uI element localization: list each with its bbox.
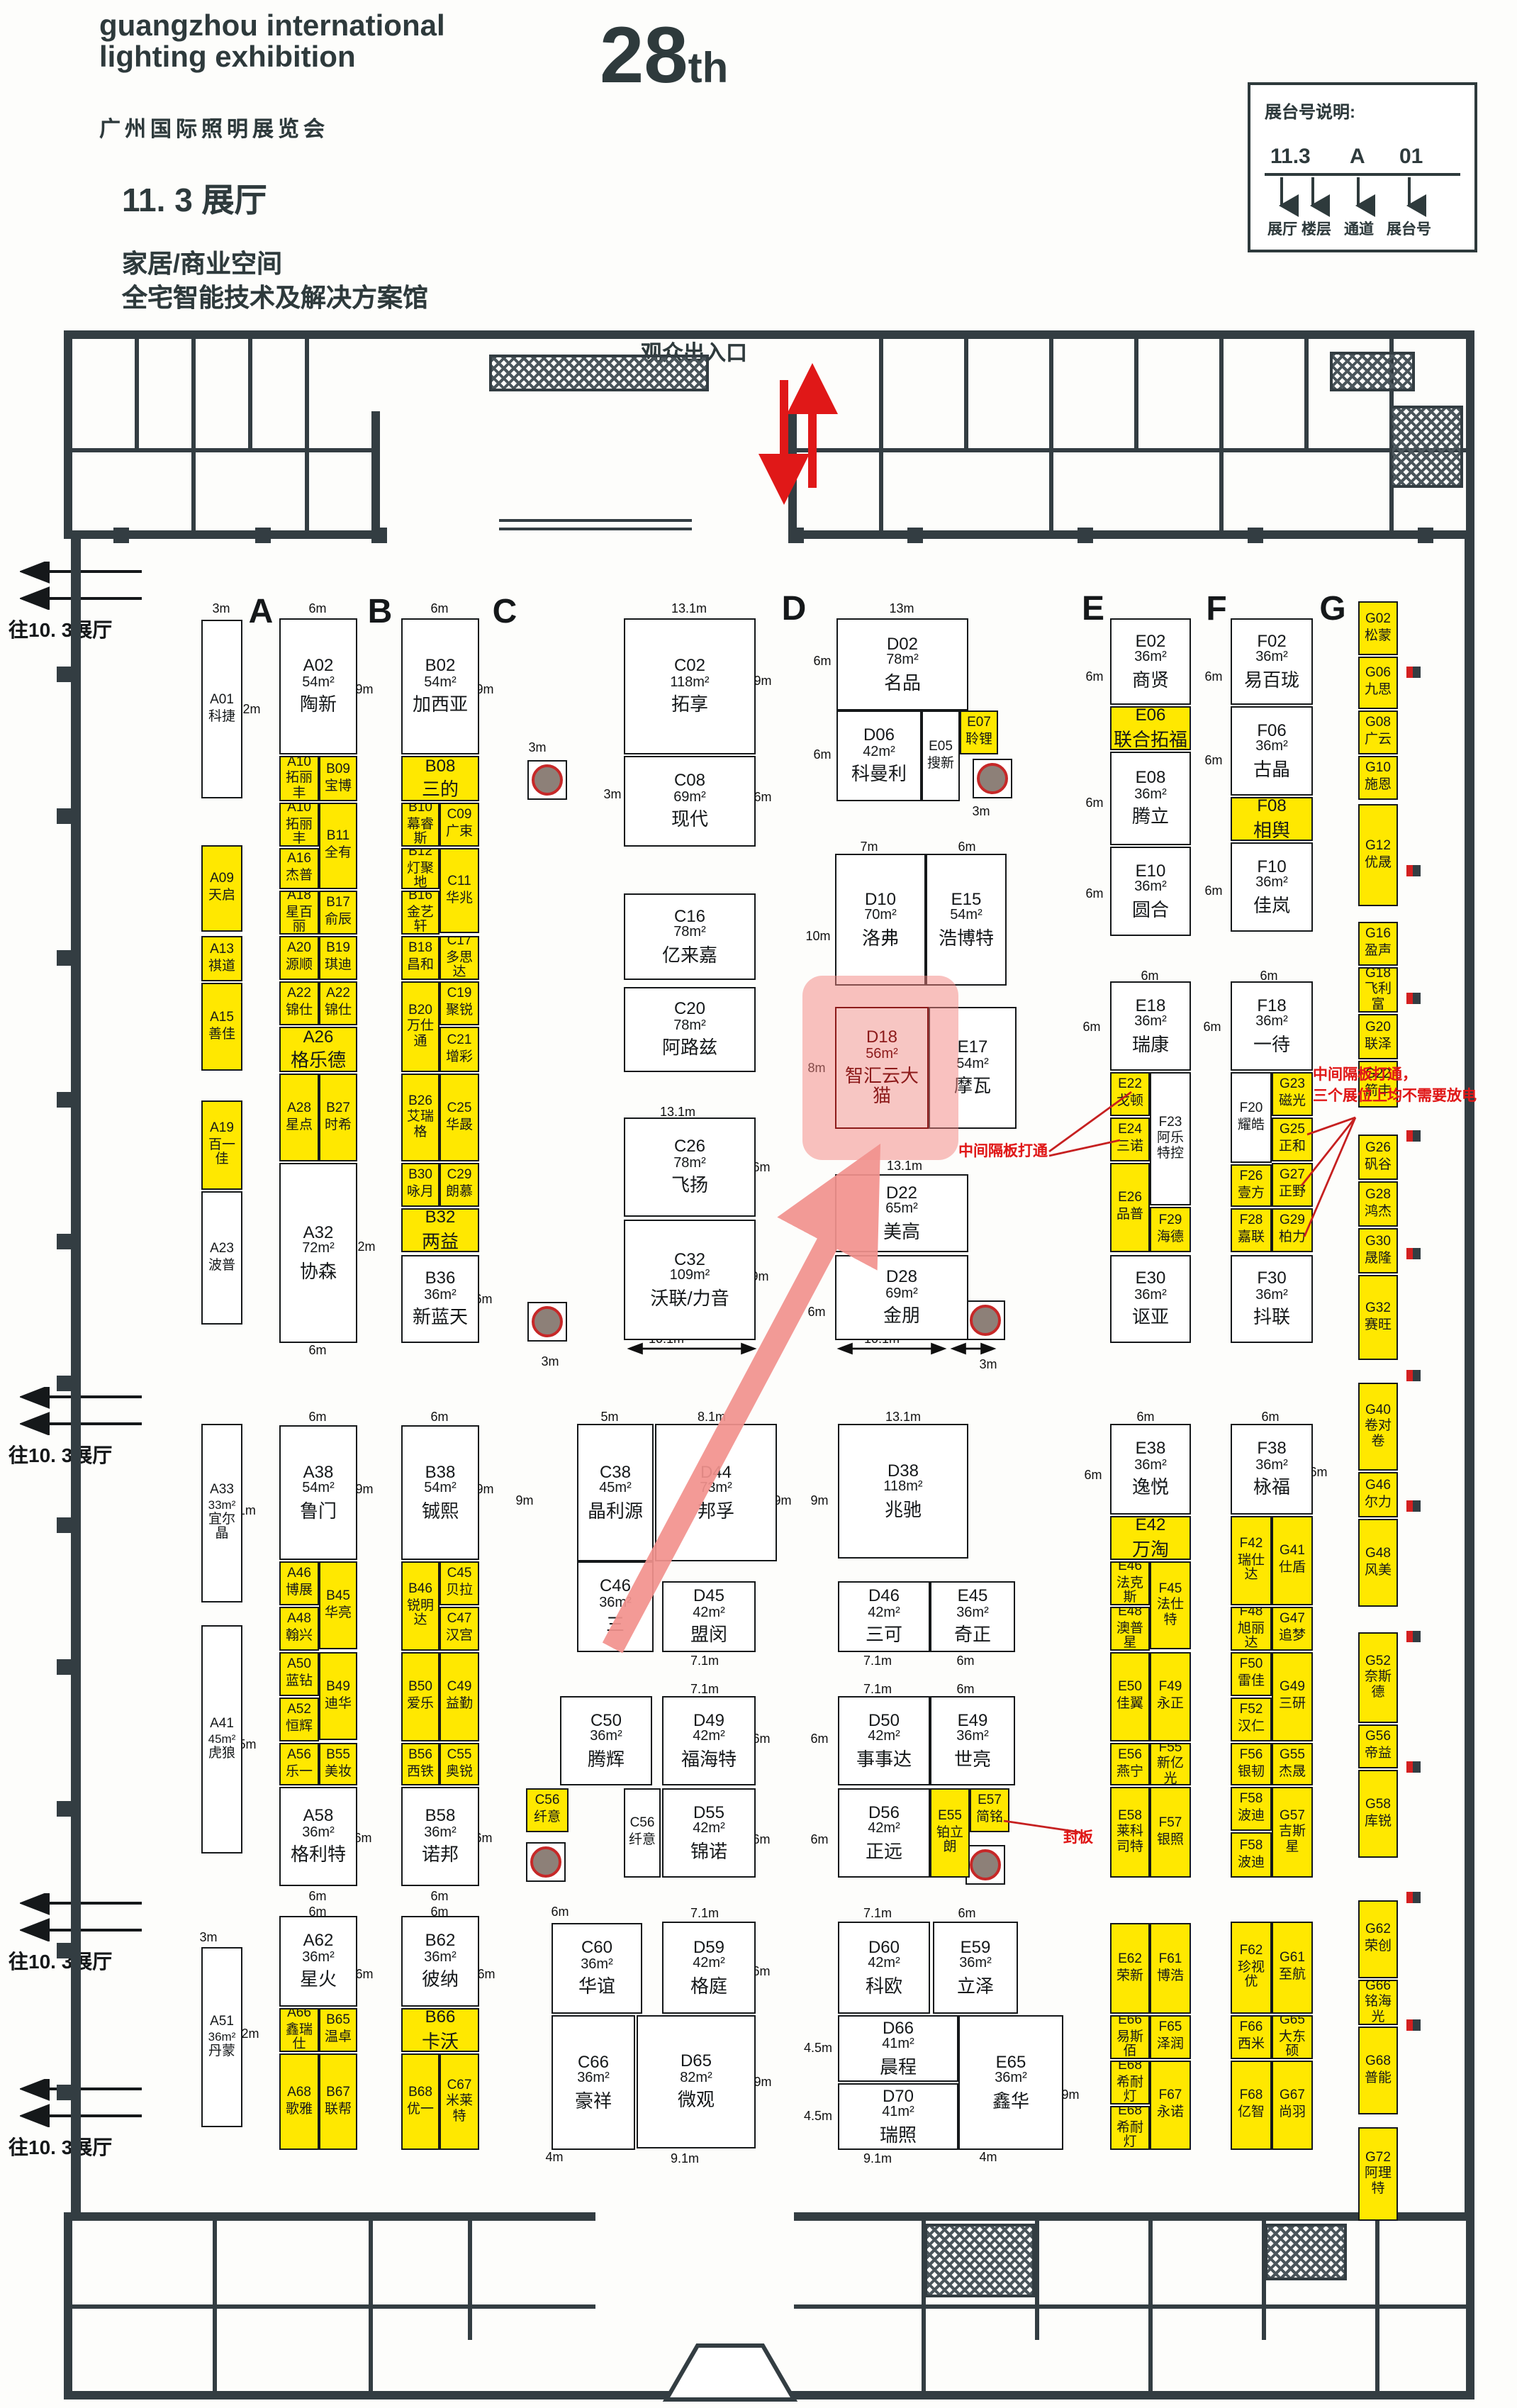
booth-area: 72m² — [302, 1243, 335, 1258]
booth-id: A66 — [287, 2008, 311, 2022]
booth-e46: E46法克斯 — [1110, 1561, 1150, 1605]
booth-b12: B12灯聚地 — [401, 848, 440, 889]
booth-number-legend: 展台号说明: 11.3 A 01 展厅 楼层 通道 展台号 — [1248, 82, 1477, 252]
booth-b10: B10幕睿斯 — [401, 803, 440, 847]
booth-g29: G29柏力 — [1272, 1208, 1313, 1252]
booth-id: G40 — [1365, 1404, 1391, 1419]
booth-name: 广云 — [1365, 733, 1392, 748]
booth-area: 36m² — [424, 1951, 457, 1966]
booth-a62: A6236m²星火 — [279, 1916, 357, 2007]
booth-id: F58 — [1240, 1839, 1263, 1854]
booth-name: 仕盾 — [1279, 1561, 1306, 1576]
dim-label: 6m — [308, 601, 326, 615]
dim-label: 6m — [813, 747, 831, 762]
booth-area: 36m² — [959, 1958, 992, 1973]
booth-name: 商贤 — [1132, 671, 1169, 691]
booth-b32: B32两益 — [401, 1208, 479, 1252]
booth-name: 翰兴 — [286, 1629, 313, 1644]
booth-area: 70m² — [864, 910, 897, 925]
wall-pillar — [57, 950, 77, 966]
booth-id: B19 — [326, 942, 350, 957]
booth-name: 晟隆 — [1365, 1252, 1392, 1266]
booth-area: 42m² — [868, 1607, 900, 1622]
booth-id: C56 — [630, 1817, 655, 1832]
booth-g40: G40卷对卷 — [1358, 1383, 1398, 1471]
dim-label: 6m — [308, 1343, 326, 1357]
booth-name: 佳岚 — [1253, 896, 1290, 917]
booth-id: D18 — [866, 1028, 897, 1047]
red-annotation: 三个展位上均不需要放电 — [1313, 1085, 1477, 1106]
booth-area: 78m² — [673, 1020, 706, 1035]
booth-name: 虎狼 — [208, 1746, 235, 1761]
dim-label: 13.1m — [671, 601, 707, 615]
booth-name: 三的 — [422, 780, 459, 801]
booth-name: 荣创 — [1365, 1940, 1392, 1955]
wall-pillar — [57, 667, 77, 682]
booth-id: G20 — [1365, 1021, 1391, 1036]
booth-id: G18 — [1365, 967, 1391, 982]
booth-id: B27 — [326, 1102, 350, 1117]
booth-area: 42m² — [693, 1731, 725, 1746]
booth-name: 沃联/力音 — [650, 1289, 729, 1310]
booth-area: 33m² — [208, 1499, 236, 1512]
booth-id: E50 — [1118, 1681, 1142, 1696]
booth-id: A20 — [287, 942, 311, 957]
booth-id: F18 — [1257, 997, 1286, 1016]
booth-id: E55 — [938, 1810, 962, 1825]
dim-label: 6m — [958, 840, 975, 854]
dim-label: 7.1m — [863, 1682, 892, 1696]
booth-e15: E1554m²浩博特 — [926, 854, 1007, 986]
booth-area: 36m² — [1134, 652, 1167, 667]
booth-b38: B3854m²铖熙 — [401, 1425, 479, 1560]
booth-e65: E6536m²鑫华 — [958, 2015, 1063, 2150]
booth-id: D45 — [693, 1588, 724, 1607]
booth-name: 松蒙 — [1365, 629, 1392, 644]
booth-name: 燕宁 — [1116, 1765, 1143, 1780]
booth-f55: F55新亿光 — [1150, 1743, 1191, 1785]
booth-name: 锦仕 — [286, 1004, 313, 1019]
booth-f20: F20耀皓 — [1231, 1072, 1272, 1163]
hatched-block — [1389, 406, 1463, 488]
booth-a56: A56乐一 — [279, 1743, 319, 1785]
booth-name: 微观 — [678, 2091, 715, 2112]
booth-g18: G18飞利富 — [1358, 967, 1398, 1013]
booth-name: 阿理特 — [1360, 2168, 1396, 2197]
booth-g41: G41仕盾 — [1272, 1516, 1313, 1605]
booth-name: 丹蒙 — [208, 2044, 235, 2059]
booth-area: 42m² — [868, 1958, 900, 1973]
booth-name: 金艺轩 — [403, 906, 438, 935]
dim-label: 6m — [1141, 969, 1158, 983]
booth-e55: E55铂立朗 — [930, 1788, 970, 1878]
booth-name: 格庭 — [690, 1977, 727, 1997]
hatched-block — [1265, 2224, 1347, 2280]
booth-g52: G52奈斯德 — [1358, 1632, 1398, 1723]
booth-name: 波迪 — [1238, 1810, 1265, 1824]
booth-b27: B27时希 — [319, 1074, 357, 1161]
booth-name: 泽润 — [1157, 2038, 1184, 2053]
booth-name: 亿来嘉 — [662, 946, 717, 966]
booth-a09: A09天启 — [201, 845, 242, 932]
booth-name: 施恩 — [1365, 779, 1392, 793]
booth-id: A16 — [287, 853, 311, 868]
booth-e62: E62荣新 — [1110, 1923, 1150, 2014]
booth-id: C55 — [447, 1749, 472, 1763]
legend-label-aisle: 通道 — [1344, 218, 1374, 240]
wall-segment — [135, 330, 139, 451]
booth-g47: G47追梦 — [1272, 1607, 1313, 1651]
booth-area: 36m² — [1255, 741, 1288, 756]
booth-name: 科欧 — [866, 1977, 902, 1997]
dim-label: 3m — [528, 740, 546, 754]
booth-name: 歌雅 — [286, 2102, 313, 2117]
booth-g66: G66铭海光 — [1358, 1980, 1398, 2025]
booth-c45: C45贝拉 — [440, 1561, 479, 1605]
booth-id: F50 — [1240, 1659, 1263, 1673]
booth-name: 昌和 — [407, 959, 434, 974]
booth-id: A32 — [303, 1224, 334, 1243]
booth-a58: A5836m²格利特 — [279, 1787, 357, 1886]
aisle-letter-b: B — [368, 593, 393, 632]
power-marker — [1406, 865, 1421, 876]
booth-id: B38 — [425, 1464, 456, 1483]
booth-name: 纤意 — [629, 1834, 656, 1849]
booth-name: 品普 — [1116, 1208, 1143, 1223]
booth-name: 聆锂 — [965, 733, 992, 748]
booth-name: 汉宫 — [446, 1629, 473, 1644]
column-marker — [977, 763, 1008, 794]
booth-id: F26 — [1240, 1170, 1263, 1185]
booth-a23: A23波普 — [201, 1191, 242, 1325]
booth-area: 54m² — [956, 1058, 989, 1073]
dim-label: 4m — [545, 2150, 563, 2164]
booth-name: 源顺 — [286, 959, 313, 974]
booth-name: 兆驰 — [885, 1500, 922, 1521]
booth-id: D02 — [887, 635, 918, 654]
booth-area: 42m² — [693, 1607, 725, 1622]
booth-e24: E24三诺 — [1110, 1117, 1150, 1161]
booth-e02: E0236m²商贤 — [1110, 618, 1191, 705]
booth-name: 瑞仕达 — [1232, 1554, 1270, 1584]
booth-name: 西铁 — [407, 1765, 434, 1780]
booth-area: 36m² — [424, 1827, 457, 1841]
booth-id: C49 — [447, 1681, 472, 1696]
booth-name: 华兆 — [446, 891, 473, 906]
booth-e38: E3836m²逸悦 — [1110, 1424, 1191, 1515]
power-marker — [1406, 667, 1421, 678]
booth-id: A41 — [210, 1717, 234, 1732]
wall-segment — [1466, 330, 1474, 539]
booth-id: E45 — [958, 1588, 988, 1607]
booth-g30: G30晟隆 — [1358, 1228, 1398, 1273]
booth-c19: C19聚锐 — [440, 981, 479, 1025]
booth-b58: B5836m²诺邦 — [401, 1787, 479, 1886]
booth-a68: A68歌雅 — [279, 2053, 319, 2150]
booth-f58: F58波迪 — [1231, 1787, 1272, 1831]
booth-name: 纤意 — [534, 1811, 561, 1826]
booth-id: G66 — [1365, 1980, 1391, 1995]
booth-name: 正野 — [1279, 1186, 1306, 1200]
booth-name: 卷对卷 — [1360, 1420, 1396, 1450]
booth-name: 艾瑞格 — [403, 1111, 438, 1141]
booth-id: G56 — [1365, 1731, 1391, 1746]
dim-label: 4.5m — [804, 2041, 832, 2055]
booth-id: A38 — [303, 1464, 334, 1483]
booth-name: 盟闵 — [690, 1626, 727, 1646]
booth-name: 铖熙 — [422, 1502, 459, 1522]
booth-id: A23 — [210, 1242, 234, 1257]
booth-name: 海德 — [1157, 1230, 1184, 1245]
booth-e42: E42万淘 — [1110, 1516, 1191, 1560]
wall-segment — [794, 448, 1470, 452]
booth-id: C60 — [581, 1939, 612, 1958]
booth-name: 奈斯德 — [1360, 1671, 1396, 1701]
booth-id: G46 — [1365, 1479, 1391, 1494]
booth-name: 温卓 — [325, 2031, 352, 2046]
booth-name: 全有 — [325, 847, 352, 862]
dim-label: 6m — [1203, 1020, 1221, 1034]
booth-area: 78m² — [673, 1157, 706, 1172]
booth-id: D06 — [863, 727, 895, 746]
booth-f58: F58波迪 — [1231, 1832, 1272, 1878]
booth-g23: G23磁光 — [1272, 1072, 1313, 1116]
booth-b16: B16金艺轩 — [401, 891, 440, 935]
booth-c20: C2078m²阿路兹 — [624, 987, 756, 1072]
wall-pillar — [1077, 528, 1093, 543]
booth-name: 法克斯 — [1112, 1577, 1148, 1605]
booth-id: E58 — [1118, 1810, 1142, 1824]
wall-pillar — [907, 528, 923, 543]
page-title: guangzhou international lighting exhibit… — [99, 11, 445, 74]
booth-f08: F08相舆 — [1231, 797, 1313, 841]
booth-name: 易百珑 — [1244, 671, 1299, 691]
booth-id: F58 — [1240, 1793, 1263, 1808]
booth-name: 恒辉 — [286, 1720, 313, 1735]
booth-b56: B56西铁 — [401, 1743, 440, 1785]
booth-id: C26 — [674, 1138, 705, 1157]
booth-id: B50 — [408, 1681, 432, 1696]
column-marker — [532, 764, 563, 796]
hatched-block — [1330, 352, 1415, 391]
booth-name: 优一 — [407, 2102, 434, 2117]
booth-id: G29 — [1280, 1215, 1305, 1230]
booth-e56: E56燕宁 — [1110, 1743, 1150, 1785]
booth-id: A56 — [287, 1749, 311, 1763]
booth-c11: C11华兆 — [440, 848, 479, 933]
booth-e45: E4536m²奇正 — [930, 1581, 1015, 1652]
booth-name: 磁光 — [1279, 1095, 1306, 1110]
booth-area: 42m² — [693, 1823, 725, 1838]
booth-name: 咏月 — [407, 1186, 434, 1200]
booth-c49: C49益勤 — [440, 1652, 479, 1741]
booth-b66: B66卡沃 — [401, 2008, 479, 2052]
booth-name: 诺邦 — [422, 1846, 459, 1866]
legend-label-floor: 楼层 — [1302, 218, 1331, 240]
booth-name: 华亮 — [325, 1606, 352, 1621]
exit-arrows — [20, 1387, 147, 1435]
booth-name: 尔力 — [1365, 1495, 1392, 1510]
booth-id: G52 — [1365, 1655, 1391, 1670]
booth-id: E05 — [929, 740, 953, 755]
booth-g58: G58库锐 — [1358, 1770, 1398, 1858]
booth-id: C32 — [674, 1251, 705, 1270]
booth-c32: C32109m²沃联/力音 — [624, 1220, 756, 1340]
booth-name: 格利特 — [291, 1846, 346, 1866]
booth-g55: G55杰晟 — [1272, 1743, 1313, 1785]
booth-id: C38 — [600, 1464, 631, 1483]
aisle-letter-e: E — [1082, 590, 1104, 630]
booth-id: A22 — [287, 988, 311, 1003]
booth-name: 福海特 — [681, 1750, 737, 1771]
wall-segment — [1035, 2212, 1039, 2340]
booth-id: E08 — [1136, 769, 1166, 788]
booth-id: B66 — [425, 2008, 456, 2027]
booth-d46: D4642m²三可 — [838, 1581, 930, 1652]
wall-segment — [879, 330, 883, 530]
booth-name: 美高 — [883, 1222, 920, 1243]
booth-name: 现代 — [671, 810, 708, 831]
booth-e26: E26品普 — [1110, 1163, 1150, 1252]
booth-id: F38 — [1257, 1440, 1286, 1459]
dim-label: 9m — [754, 2075, 771, 2089]
dim-label: 3m — [972, 804, 990, 818]
booth-name: 锦仕 — [325, 1004, 352, 1019]
booth-f30: F3036m²抖联 — [1231, 1255, 1313, 1343]
wall-pillar — [113, 528, 129, 543]
dim-label: 6m — [1085, 886, 1103, 901]
booth-area: 45m² — [208, 1732, 236, 1745]
power-marker — [1406, 1500, 1421, 1512]
booth-id: A13 — [210, 943, 234, 958]
booth-f45: F45法仕特 — [1150, 1561, 1191, 1649]
booth-name: 希耐灯 — [1112, 2122, 1148, 2150]
booth-area: 118m² — [670, 676, 709, 691]
dim-label: 6m — [1085, 796, 1103, 810]
booth-area: 36m² — [1255, 1459, 1288, 1474]
booth-c38: C3845m²晶利源 — [577, 1424, 654, 1561]
hall-label: 11. 3 展厅 — [122, 173, 267, 221]
booth-id: E48 — [1118, 1607, 1142, 1621]
booth-name: 铭海光 — [1360, 1996, 1396, 2025]
booth-id: D55 — [693, 1804, 724, 1823]
booth-id: G16 — [1365, 928, 1391, 943]
booth-id: F49 — [1159, 1681, 1182, 1696]
booth-a16: A16杰普 — [279, 848, 319, 889]
booth-name: 珍视优 — [1232, 1961, 1270, 1991]
booth-name: 逸悦 — [1132, 1478, 1169, 1499]
booth-id: F56 — [1240, 1749, 1263, 1763]
booth-c67: C67米莱特 — [440, 2053, 479, 2150]
wall-pillar — [255, 528, 271, 543]
booth-id: E22 — [1118, 1078, 1142, 1093]
booth-d65: D6582m²微观 — [637, 2015, 756, 2148]
booth-id: F30 — [1257, 1270, 1286, 1289]
wall-segment — [1134, 330, 1138, 451]
booth-id: B56 — [408, 1749, 432, 1763]
booth-name: 朗慕 — [446, 1186, 473, 1200]
booth-area: 54m² — [424, 676, 457, 691]
booth-f42: F42瑞仕达 — [1231, 1516, 1272, 1605]
booth-id: G67 — [1280, 2090, 1305, 2105]
booth-name: 银照 — [1157, 1833, 1184, 1848]
booth-a46: A46博展 — [279, 1561, 319, 1605]
booth-name: 锐明达 — [403, 1600, 438, 1629]
power-marker — [1406, 1631, 1421, 1642]
wall-segment — [1465, 539, 1474, 2219]
dim-label: 3m — [212, 601, 230, 615]
booth-id: G72 — [1365, 2151, 1391, 2166]
wall-segment — [64, 2391, 1474, 2399]
aisle-letter-f: F — [1206, 590, 1226, 630]
booth-area: 69m² — [673, 791, 706, 806]
power-marker — [1406, 1248, 1421, 1259]
booth-name: 宝博 — [325, 779, 352, 794]
booth-id: E24 — [1118, 1124, 1142, 1139]
booth-name: 阿乐特控 — [1151, 1132, 1189, 1162]
booth-area: 36m² — [302, 1951, 335, 1966]
booth-name: 豪祥 — [575, 2092, 612, 2112]
booth-id: G57 — [1280, 1810, 1305, 1824]
booth-a01: A01科捷 — [201, 620, 242, 798]
booth-a19: A19百一佳 — [201, 1100, 242, 1190]
booth-id: A19 — [210, 1122, 234, 1137]
wall-pillar — [1418, 528, 1433, 543]
booth-name: 星火 — [300, 1971, 337, 1991]
booth-a22: A22锦仕 — [319, 981, 357, 1025]
booth-area: 45m² — [599, 1483, 632, 1498]
booth-name: 星百丽 — [281, 906, 318, 935]
booth-name: 爱乐 — [407, 1698, 434, 1712]
red-annotation: 中间隔板打通， — [1313, 1064, 1417, 1085]
booth-id: E06 — [1136, 706, 1166, 725]
booth-name: 杰晟 — [1279, 1765, 1306, 1780]
booth-d49: D4942m²福海特 — [662, 1696, 756, 1785]
booth-id: A46 — [287, 1568, 311, 1583]
wall-pillar — [371, 528, 387, 543]
booth-id: A62 — [303, 1932, 334, 1951]
booth-f61: F61博浩 — [1150, 1923, 1191, 2014]
booth-d45: D4542m²盟闵 — [662, 1581, 756, 1652]
booth-id: E38 — [1136, 1440, 1166, 1459]
booth-id: C09 — [447, 809, 472, 824]
booth-c47: C47汉宫 — [440, 1607, 479, 1651]
booth-g48: G48风美 — [1358, 1519, 1398, 1607]
booth-name: 铂立朗 — [931, 1827, 968, 1856]
booth-id: F55 — [1159, 1743, 1182, 1756]
wall-segment — [64, 530, 380, 539]
booth-d38: D38118m²兆驰 — [838, 1424, 968, 1559]
booth-id: B17 — [326, 897, 350, 912]
booth-a20: A20源顺 — [279, 936, 319, 980]
booth-a51: A5136m²丹蒙 — [201, 1947, 242, 2127]
title-chinese: 广州国际照明展览会 — [99, 113, 329, 143]
booth-f23: F23阿乐特控 — [1150, 1072, 1191, 1205]
booth-name: 新蓝天 — [413, 1308, 468, 1329]
dim-label: 6m — [810, 1832, 828, 1846]
booth-id: E42 — [1136, 1516, 1166, 1535]
booth-a33: A3333m²宜尔晶 — [201, 1424, 242, 1602]
booth-name: 瑞康 — [1132, 1035, 1169, 1056]
booth-id: D22 — [886, 1184, 917, 1203]
dim-label: 6m — [958, 1906, 975, 1920]
booth-b02: B0254m²加西亚 — [401, 618, 479, 754]
exit-arrows — [20, 1893, 147, 1941]
booth-e49: E4936m²世亮 — [930, 1696, 1015, 1785]
booth-id: E59 — [961, 1939, 991, 1958]
booth-name: 飞利富 — [1360, 983, 1396, 1013]
booth-id: B65 — [326, 2014, 350, 2029]
